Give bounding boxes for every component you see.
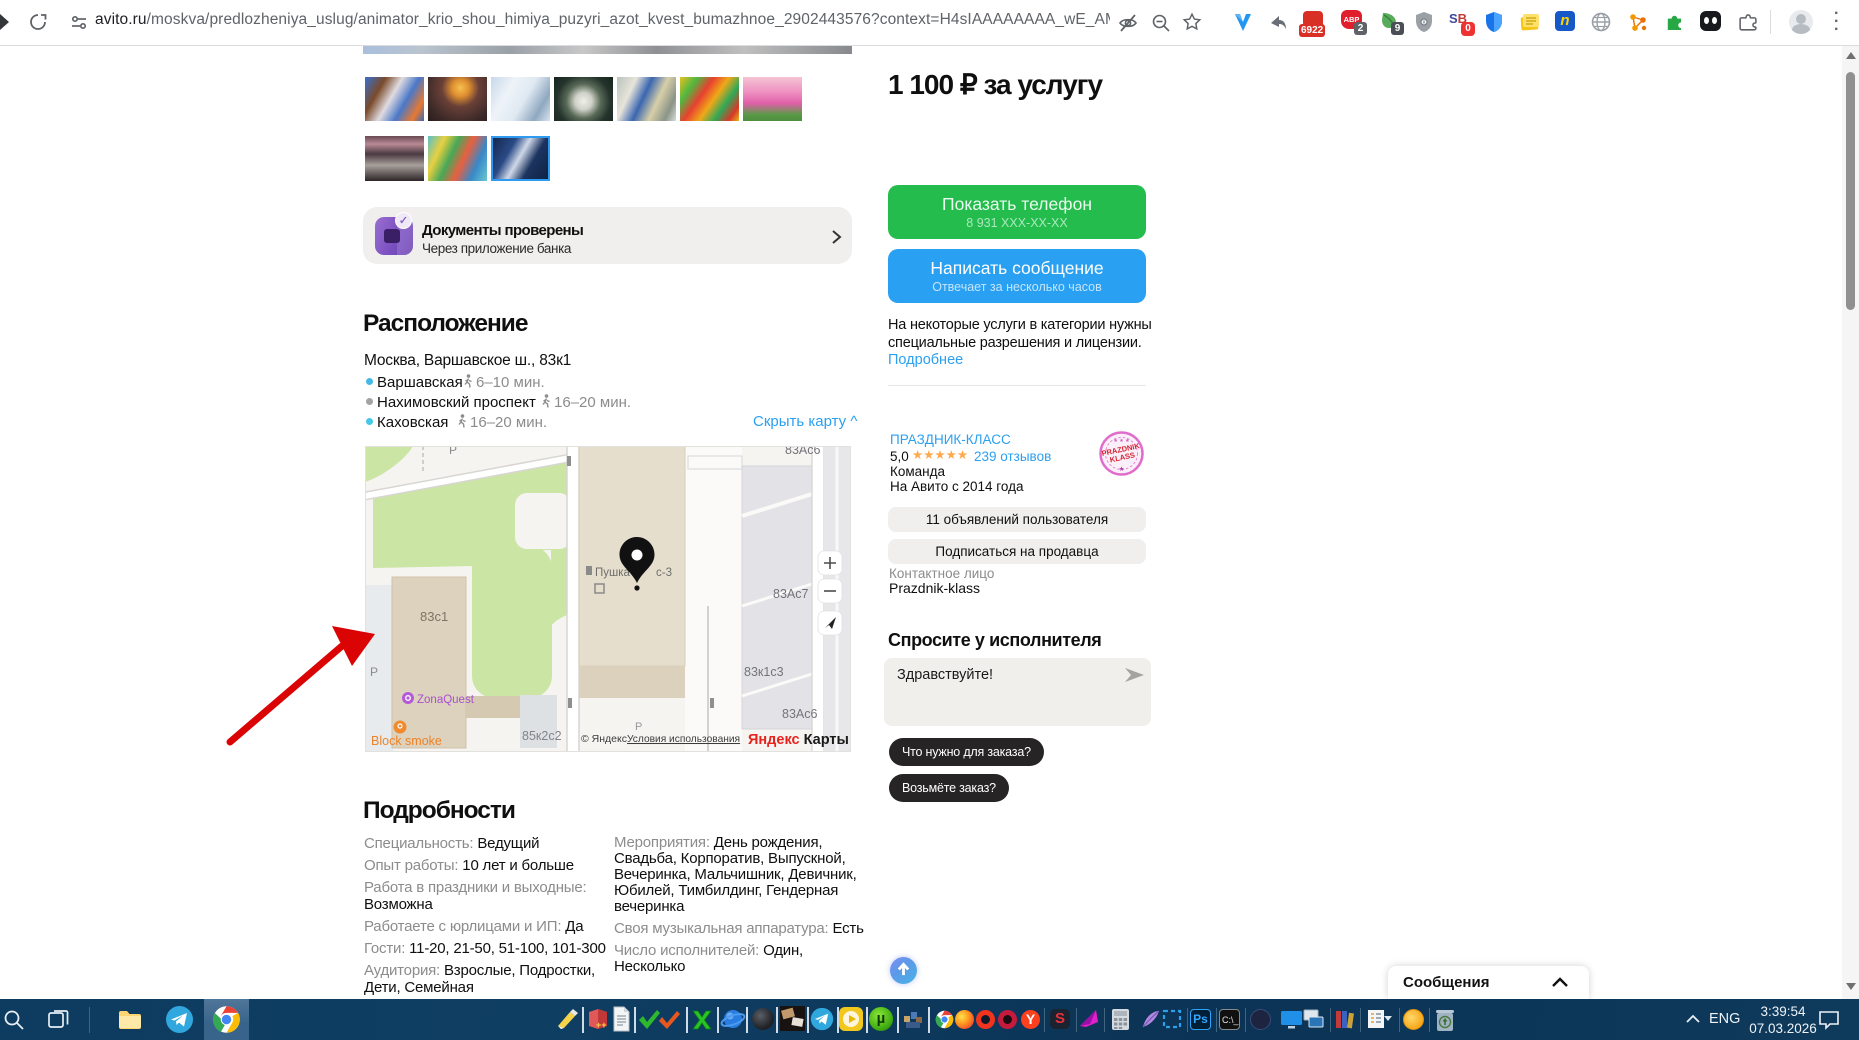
svg-text:© Яндекс: © Яндекс (581, 733, 627, 745)
svg-text:83Ас6: 83Ас6 (782, 707, 817, 721)
svg-text:★ ★ ★: ★ ★ ★ (1113, 438, 1130, 444)
svg-text:Пушка: Пушка (595, 567, 631, 579)
svg-text:с-3: с-3 (656, 567, 672, 579)
svg-text:++: ++ (596, 1020, 607, 1030)
svg-text:P: P (635, 721, 642, 733)
svg-text:★: ★ (1119, 465, 1125, 473)
svg-text:Яндекс Карты: Яндекс Карты (748, 732, 849, 748)
svg-text:83к1с3: 83к1с3 (744, 665, 784, 679)
svg-text:ZonaQuest: ZonaQuest (417, 694, 475, 706)
svg-text:85к2с2: 85к2с2 (522, 729, 562, 743)
svg-text:83Ас7: 83Ас7 (773, 587, 808, 601)
svg-text:83с1: 83с1 (420, 609, 448, 624)
svg-text:P: P (449, 446, 457, 457)
svg-text:83Ас6: 83Ас6 (785, 446, 820, 457)
svg-text:Условия использования: Условия использования (627, 734, 740, 745)
